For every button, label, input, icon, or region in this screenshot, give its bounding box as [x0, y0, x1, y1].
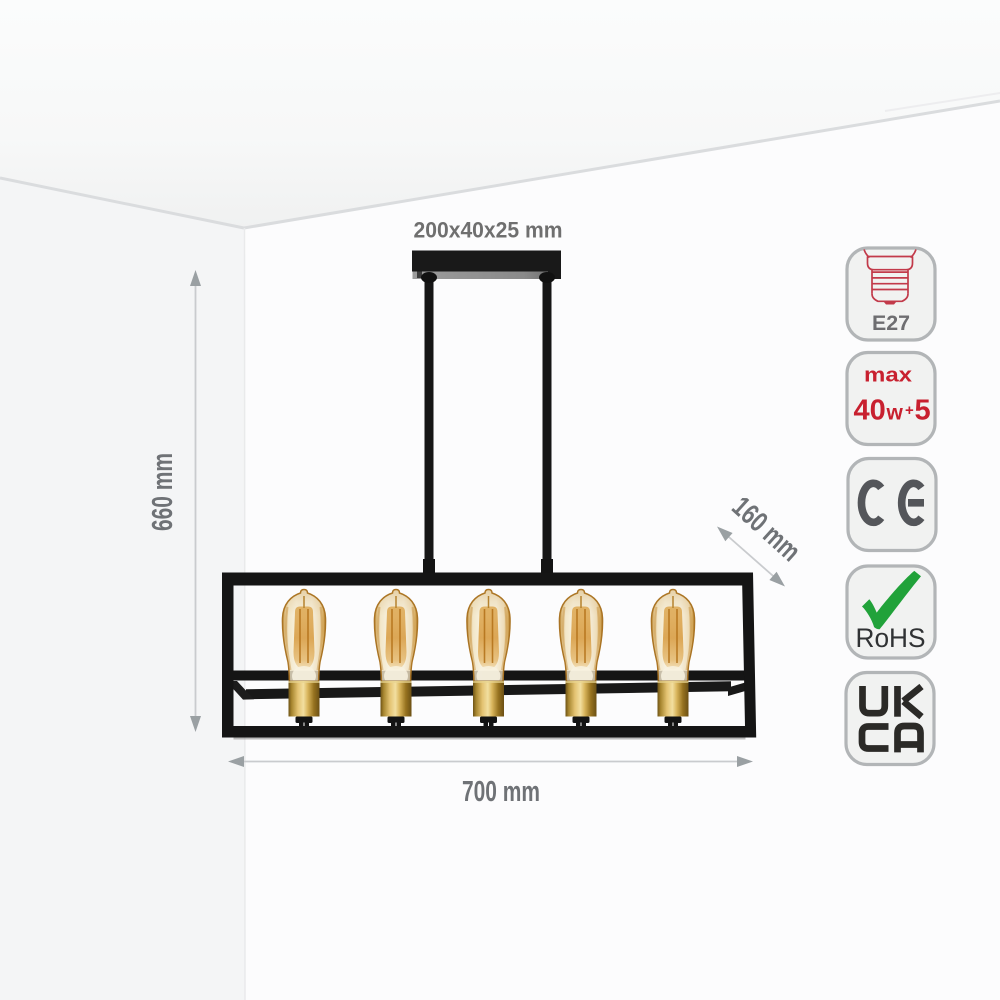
- svg-text:700 mm: 700 mm: [462, 776, 540, 808]
- svg-text:660 mm: 660 mm: [147, 453, 179, 531]
- svg-text:E27: E27: [872, 311, 910, 335]
- svg-text:max: max: [864, 365, 912, 387]
- svg-text:200x40x25 mm: 200x40x25 mm: [414, 218, 563, 243]
- svg-text:RoHS: RoHS: [856, 623, 926, 653]
